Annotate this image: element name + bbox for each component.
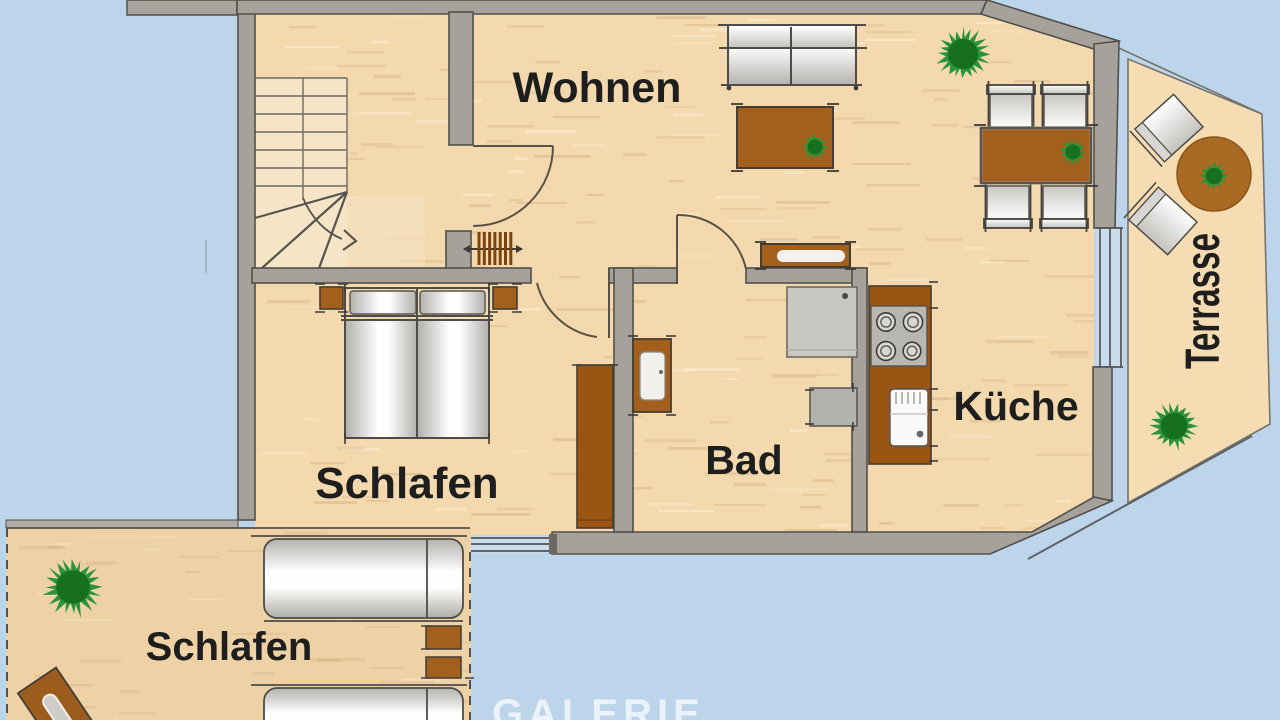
svg-text:Schlafen: Schlafen (315, 459, 498, 508)
svg-text:Terrasse: Terrasse (1176, 233, 1230, 369)
svg-text:Bad: Bad (705, 437, 782, 483)
svg-text:GALERIE: GALERIE (492, 692, 705, 720)
svg-text:Wohnen: Wohnen (513, 64, 682, 112)
svg-text:Küche: Küche (953, 383, 1078, 429)
svg-text:Schlafen: Schlafen (146, 625, 313, 669)
